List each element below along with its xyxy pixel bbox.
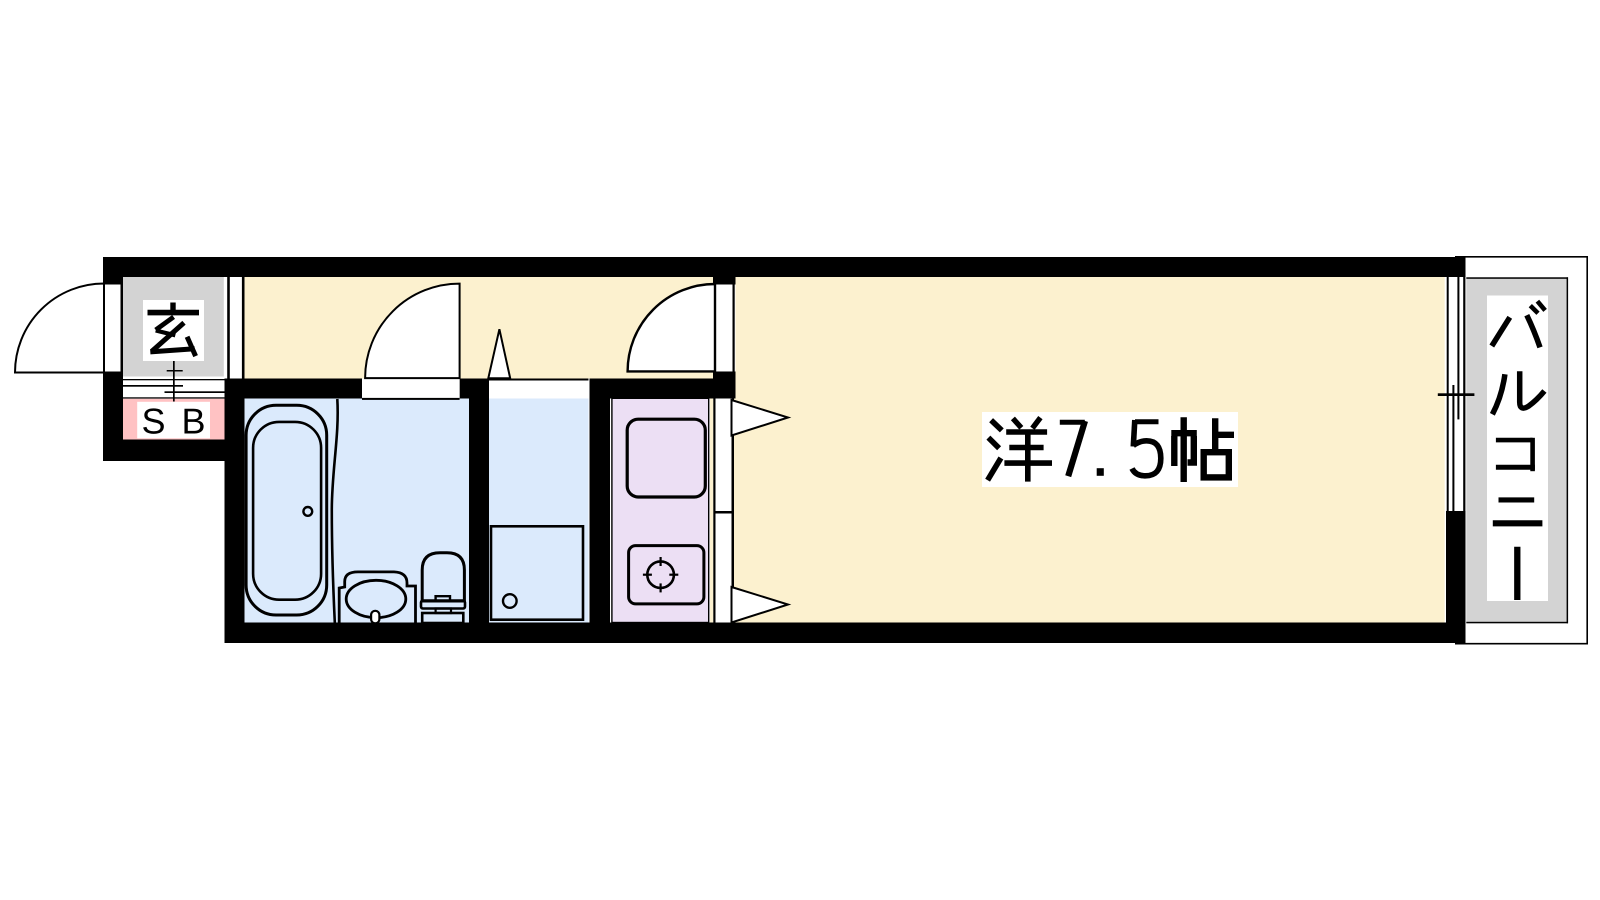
svg-text:B: B xyxy=(182,401,206,442)
svg-text:S: S xyxy=(142,401,166,442)
